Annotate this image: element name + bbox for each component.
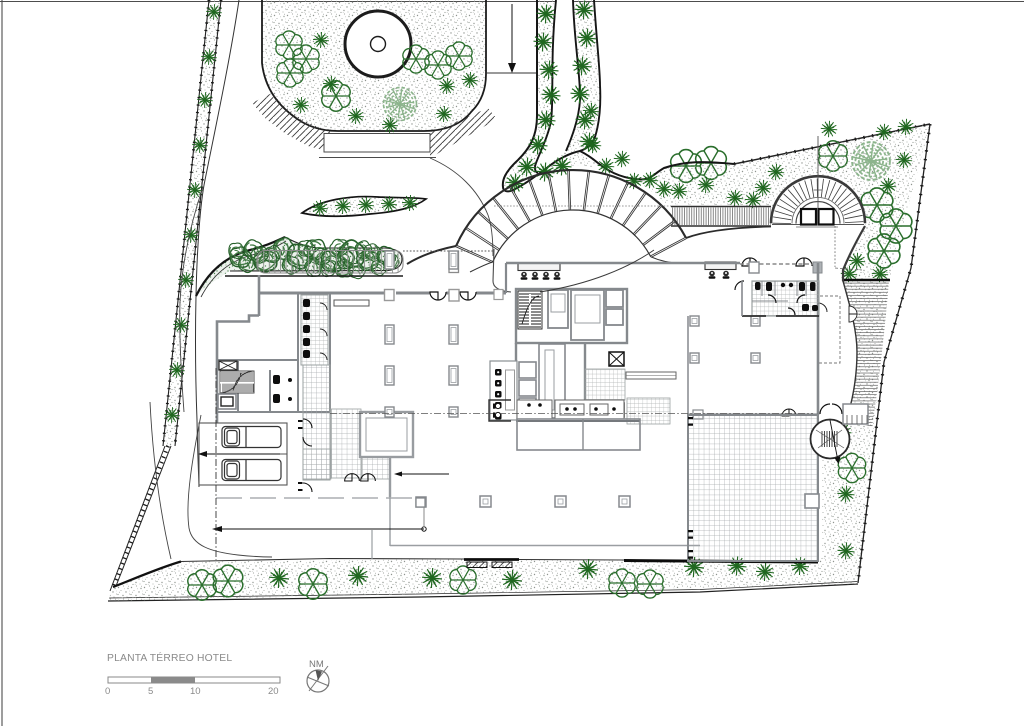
svg-text:5: 5 — [148, 686, 153, 697]
svg-text:10: 10 — [190, 686, 201, 697]
svg-text:PLANTA TÉRREO HOTEL: PLANTA TÉRREO HOTEL — [107, 651, 232, 664]
svg-text:0: 0 — [105, 686, 110, 697]
svg-text:20: 20 — [268, 686, 279, 697]
svg-text:NM: NM — [309, 659, 324, 670]
